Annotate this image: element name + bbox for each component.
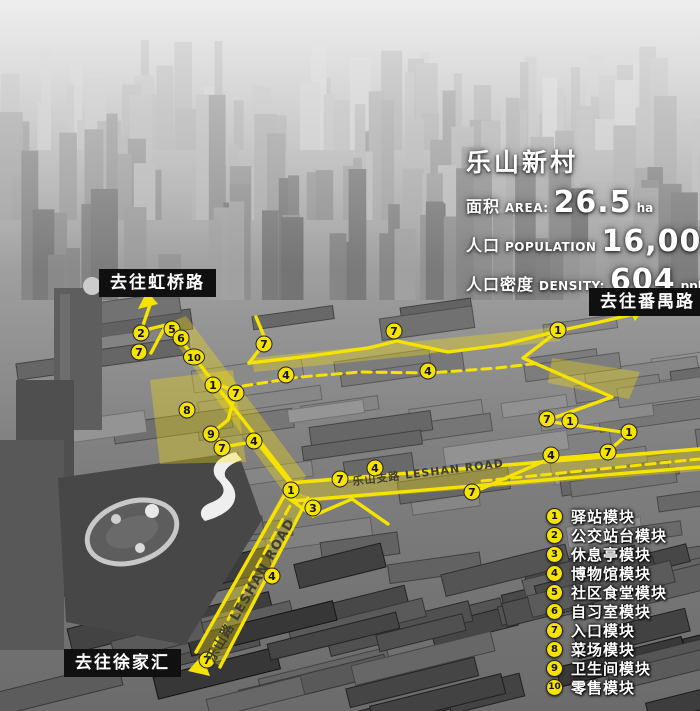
svg-text:7: 7 [232,387,240,400]
legend-item-1: 1驿站模块 [546,509,667,524]
map-marker-6: 6 [173,330,189,346]
legend-item-4: 4博物馆模块 [546,566,667,581]
svg-text:10: 10 [187,353,201,364]
map-marker-8: 8 [179,402,195,418]
legend-item-label: 休息亭模块 [571,544,651,565]
svg-text:4: 4 [282,369,290,382]
svg-text:7: 7 [543,413,551,426]
stat-population-label-en: POPULATION [505,241,596,253]
svg-text:8: 8 [183,404,191,417]
legend-number-badge: 8 [546,641,563,658]
legend-item-label: 博物馆模块 [571,563,651,584]
legend-number-badge: 4 [546,565,563,582]
legend-item-7: 7入口模块 [546,623,667,638]
map-marker-1: 1 [562,413,578,429]
map-marker-7: 7 [214,440,230,456]
stat-population-label-cn: 人口 [466,238,500,254]
map-marker-7: 7 [386,323,402,339]
map-marker-4: 4 [246,433,262,449]
svg-text:7: 7 [390,325,398,338]
map-marker-10: 10 [184,349,205,365]
legend-item-label: 卫生间模块 [571,658,651,679]
stat-area: 面积 AREA: 26.5 ha [466,188,698,218]
map-marker-1: 1 [621,424,637,440]
map-marker-7: 7 [256,336,272,352]
legend-item-8: 8菜场模块 [546,642,667,657]
svg-text:7: 7 [135,346,143,359]
svg-text:7: 7 [218,442,226,455]
legend-item-2: 2公交站台模块 [546,528,667,543]
legend-number-badge: 1 [546,508,563,525]
legend-item-label: 社区食堂模块 [571,582,667,603]
map-marker-1: 1 [283,482,299,498]
stat-area-value: 26.5 [554,188,632,218]
svg-text:7: 7 [260,338,268,351]
legend-item-3: 3休息亭模块 [546,547,667,562]
legend-item-10: 10零售模块 [546,680,667,695]
svg-text:3: 3 [309,502,317,515]
map-marker-7: 7 [539,411,555,427]
svg-text:4: 4 [424,365,432,378]
map-marker-2: 2 [133,325,149,341]
map-marker-9: 9 [203,426,219,442]
legend-number-badge: 3 [546,546,563,563]
stat-population-value: 16,000 [601,227,700,257]
svg-text:4: 4 [250,435,258,448]
map-marker-7: 7 [131,344,147,360]
direction-label-panyu: 去往番禺路 [589,288,700,316]
legend-number-badge: 6 [546,603,563,620]
svg-text:1: 1 [209,379,217,392]
map-marker-7: 7 [600,444,616,460]
map-marker-1: 1 [550,322,566,338]
legend-number-badge: 2 [546,527,563,544]
svg-text:4: 4 [547,449,555,462]
svg-text:1: 1 [554,324,562,337]
legend-item-label: 入口模块 [571,620,635,641]
stat-population: 人口 POPULATION 16,000 ppl [466,227,698,257]
map-marker-4: 4 [420,363,436,379]
legend-number-badge: 7 [546,622,563,639]
stat-density-label-cn: 人口密度 [466,277,534,293]
svg-text:1: 1 [625,426,633,439]
map-marker-7: 7 [228,385,244,401]
legend-item-5: 5社区食堂模块 [546,585,667,600]
svg-text:9: 9 [207,428,215,441]
svg-text:6: 6 [177,332,185,345]
svg-text:7: 7 [604,446,612,459]
map-marker-4: 4 [278,367,294,383]
direction-label-xujiahui: 去往徐家汇 [64,649,181,677]
legend-item-6: 6自习室模块 [546,604,667,619]
map-marker-7: 7 [332,471,348,487]
area-title: 乐山新村 [466,143,698,179]
svg-text:1: 1 [287,484,295,497]
legend-item-9: 9卫生间模块 [546,661,667,676]
legend-item-label: 自习室模块 [571,601,651,622]
stat-area-unit: ha [637,202,654,214]
info-panel: 乐山新村 面积 AREA: 26.5 ha 人口 POPULATION 16,0… [466,143,698,296]
module-legend: 1驿站模块2公交站台模块3休息亭模块4博物馆模块5社区食堂模块6自习室模块7入口… [546,509,667,695]
legend-item-label: 零售模块 [571,677,635,698]
map-marker-7: 7 [464,484,480,500]
legend-number-badge: 5 [546,584,563,601]
map-marker-3: 3 [305,500,321,516]
direction-label-hongqiao: 去往虹桥路 [99,269,216,297]
legend-item-label: 驿站模块 [571,506,635,527]
legend-item-label: 公交站台模块 [571,525,667,546]
svg-text:7: 7 [336,473,344,486]
svg-text:2: 2 [137,327,145,340]
map-marker-4: 4 [543,447,559,463]
stat-area-label-en: AREA: [505,202,549,214]
stat-area-label-cn: 面积 [466,199,500,215]
legend-item-label: 菜场模块 [571,639,635,660]
svg-text:1: 1 [566,415,574,428]
legend-number-badge: 10 [546,679,563,696]
svg-text:7: 7 [468,486,476,499]
legend-number-badge: 9 [546,660,563,677]
map-marker-1: 1 [205,377,221,393]
aerial-photo-scene: 25671017897474741374747171174 乐山新村 面积 AR… [0,0,700,711]
